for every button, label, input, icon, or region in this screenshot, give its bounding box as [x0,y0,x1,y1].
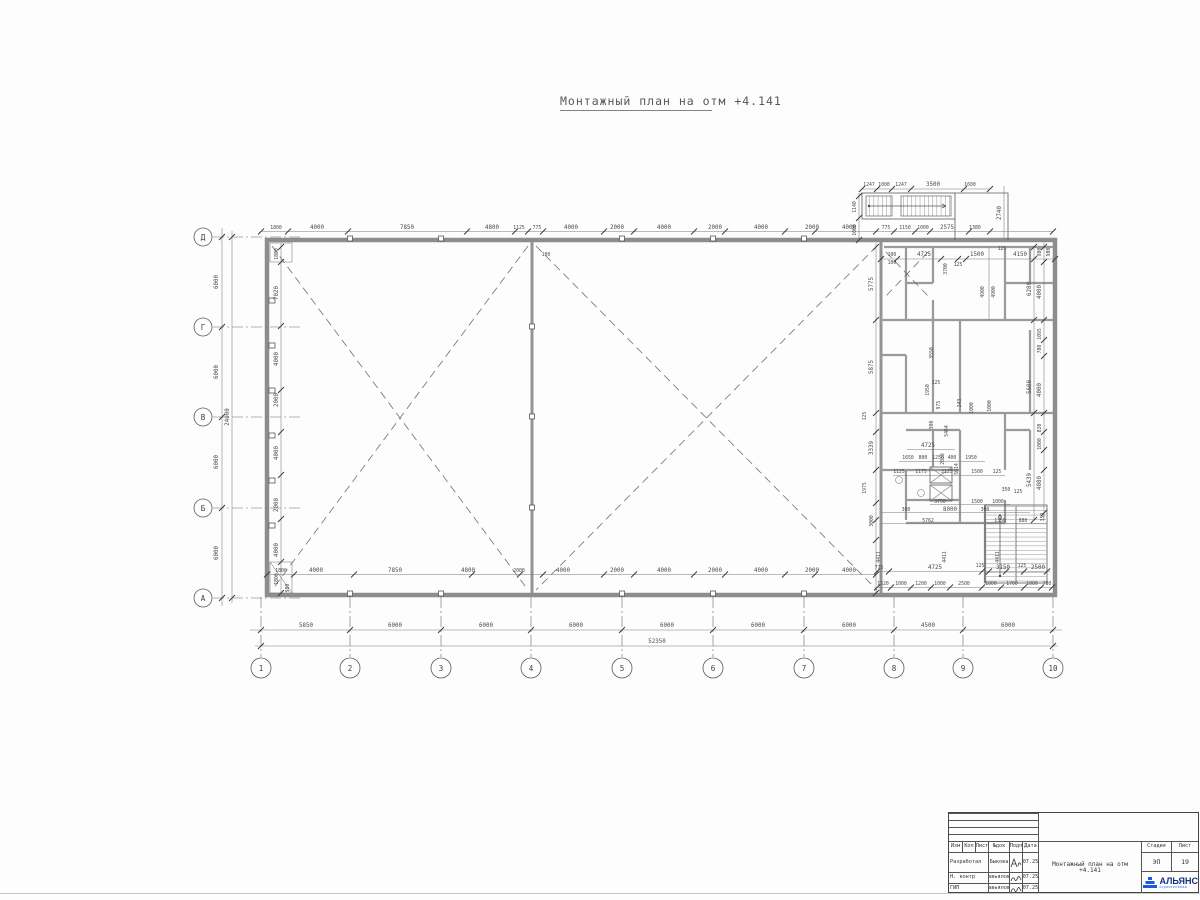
axis-label: 7 [802,664,807,673]
dim-label: 2500 [958,581,970,587]
tb-signature-2 [1009,872,1022,883]
dim-label: 4900 [980,286,986,298]
dim-label: 3000 [869,515,875,527]
column [802,236,807,241]
company-logo-icon [1144,877,1156,890]
dim-label: 6000 [214,275,220,289]
dim-label: 1250 [932,455,944,461]
dim-label: 2000 [708,225,722,231]
tb-col-list: Лист [975,841,988,852]
dim-label: 125 [976,563,985,569]
axis-label: 2 [348,664,353,673]
dim-label: 4800 [461,568,475,574]
dim-label: 800 [919,455,928,461]
dim-label: 1247 [895,182,907,188]
column [439,236,444,241]
dim-label: 2740 [997,206,1003,220]
dim-label: 300 [902,507,911,513]
signature-glyph [1010,874,1022,883]
outer-wall [267,240,1055,595]
dim-label: 4900 [991,286,997,298]
fixture-symbol-2 [918,490,925,497]
dim-label: 300 [929,421,935,430]
dim-label: 6000 [751,623,765,629]
dim-label: 6000 [214,365,220,379]
axis-label: 3 [439,664,444,673]
dim-label: 5762 [922,518,934,524]
dim-label: 2500 [1031,565,1045,571]
dim-label: 125 [862,412,868,421]
dim-label: 2000 [610,568,624,574]
dim-label: 4080 [1037,476,1043,490]
dim-label: 3750 [934,499,946,505]
column [711,236,716,241]
axis-label: Б [201,504,206,513]
dim-label: 6000 [479,623,493,629]
column [711,591,716,596]
dim-label: 1975 [862,482,868,494]
dim-label: 3500 [926,182,940,188]
dim-label: 6280 [1027,282,1033,296]
column [802,591,807,596]
dim-label: 359 [1040,513,1046,522]
dim-label: 5875 [869,360,875,374]
dim-label: 1000 [1026,581,1038,587]
dim-label: 3339 [869,441,875,455]
column [348,591,353,596]
dim-label: 4000 [274,446,280,460]
dim-label: 6000 [388,623,402,629]
dim-label: 1000 [987,400,993,412]
dim-label: 125 [993,469,1002,475]
tb-name-2: Завьялова [988,872,1009,883]
dim-label: 4150 [1013,252,1027,258]
dim-label: 1000 [985,581,997,587]
axis-label: В [201,413,206,422]
dim-label: 125 [932,380,941,386]
dim-label: 6000 [1001,623,1015,629]
dim-label: 4000 [564,225,578,231]
dim-label: 4725 [917,252,931,258]
dim-label: 1000 [852,224,858,236]
dim-label: 1140 [852,201,858,213]
axis-label: Г [201,323,206,332]
column [348,236,353,241]
dim-label: 2000 [610,225,624,231]
dim-label: 4000 [556,568,570,574]
column [530,505,535,510]
dim-label: 6000 [214,546,220,560]
dim-label: 4725 [928,565,942,571]
dim-label: 243 [957,399,963,408]
bracing [272,246,928,590]
dim-label: 125 [1014,489,1023,495]
dim-label: 100 [888,252,897,258]
dim-label: 1000 [895,581,907,587]
walls [267,240,1055,595]
dim-label: 1125 [893,469,905,475]
dim-label: 1320 [877,581,889,587]
dim-label: 4000 [657,225,671,231]
dim-label: 1200 [915,581,927,587]
dim-label: 7020 [274,286,280,300]
column [620,236,625,241]
dim-label: 4000 [1037,285,1043,299]
title-block: Изм Кол Лист №док Подп Дата Разработал Б… [948,812,1199,893]
axis-label: 4 [529,664,534,673]
dim-label: 775 [875,565,884,571]
dim-label: 4411 [876,551,882,563]
dim-label: 1095 [1037,328,1043,340]
dim-label: 300 [981,507,990,513]
signature-glyph [1010,857,1022,869]
dim-label: 980 [285,584,291,593]
dim-label: 4000 [274,543,280,557]
dim-label: 1000 [917,225,929,231]
dim-label: 5850 [299,623,313,629]
dim-label: 4000 [274,352,280,366]
dim-label: 1800 [274,573,280,585]
dimension-lines [222,186,1062,646]
dim-label: 52350 [648,639,666,645]
dim-label: 980 [1037,248,1043,257]
tb-stage-value: ЭП [1141,852,1171,871]
dim-label: 3700 [943,263,949,275]
dim-label: 1700 [1006,581,1018,587]
dim-label: 780 [1037,345,1043,354]
tb-signature-1 [1009,852,1022,872]
dim-label: 5464 [944,425,950,437]
column [530,414,535,419]
pilaster [269,388,275,393]
dim-label: 3150 [996,565,1010,571]
dim-label: 1500 [971,499,983,505]
column [530,324,535,329]
floor-plan-canvas: Монтажный план на отм +4.141 [0,0,1200,900]
dim-label: 1800 [274,248,280,260]
dim-label: 2000 [708,568,722,574]
tb-col-podp: Подп [1009,841,1022,852]
axis-label: 10 [1048,664,1058,673]
dim-label: 125 [1018,563,1027,569]
dim-label: 4000 [310,225,324,231]
dim-label: 350 [1002,487,1011,493]
dim-label: 1350 [994,518,1006,524]
dim-label: 775 [533,225,542,231]
dim-label: 100 [888,260,897,266]
tb-sheet-label: Лист [1171,841,1198,852]
dim-label: 980 [1046,248,1052,257]
pilaster [269,343,275,348]
dim-label: 4411 [942,551,948,563]
tb-col-kol: Кол [962,841,975,852]
axis-label: Д [201,233,206,242]
dim-label: 4000 [1037,383,1043,397]
tb-col-izm: Изм [949,841,962,852]
dim-label: 4800 [485,225,499,231]
dim-label: 975 [936,401,942,410]
dim-label: 1500 [971,469,983,475]
dim-label: 400 [948,455,957,461]
dim-label: 4411 [995,551,1001,563]
dim-label: 1500 [970,252,984,258]
tb-stage-label: Стадия [1141,841,1171,852]
dim-label: 1000 [969,402,975,414]
pilaster [269,433,275,438]
dim-label: 2000 [805,568,819,574]
tb-date-1: 07.25 [1022,852,1038,872]
page-title: Монтажный план на отм +4.141 [560,94,782,108]
dim-label: 125 [954,262,963,268]
dim-label: 4000 [754,225,768,231]
fixture-symbol-1 [896,477,903,484]
dim-label: 7850 [400,225,414,231]
dim-label: 2575 [940,225,954,231]
dim-label: 4725 [921,443,935,449]
dim-label: 5600 [1027,380,1033,394]
axis-label: 1 [259,664,264,673]
axis-label: 9 [961,664,966,673]
dim-label: 880 [1019,518,1028,524]
dim-label: 2000 [805,225,819,231]
dim-label: 1650 [902,455,914,461]
dim-label: 24000 [225,408,231,426]
dim-label: 5775 [869,277,875,291]
dim-label: 1380 [969,225,981,231]
dim-label: 4000 [754,568,768,574]
tb-role-1: Разработал [949,852,988,872]
axis-label: 6 [711,664,716,673]
column [620,591,625,596]
dim-label: 4000 [842,568,856,574]
drawing-sheet: Монтажный план на отм +4.141 [0,0,1200,900]
dim-label: 1950 [965,455,977,461]
dim-label: 820 [1037,424,1043,433]
dim-label: 6000 [569,623,583,629]
tb-sheet-value: 19 [1171,852,1198,871]
dim-label: 1247 [863,182,875,188]
dim-label: 775 [882,225,891,231]
dim-label: 1175 [915,469,927,475]
dim-label: 780 [1043,581,1052,587]
dim-label: 5439 [1027,473,1033,487]
tb-logo-cell: АЛЬЯНС строительная [1141,871,1198,894]
dim-label: 1950 [925,384,931,396]
dim-label: 1600 [964,182,976,188]
axis-label: А [201,594,206,603]
sheet-title: Монтажный план на отм +4.141 [560,94,782,111]
tb-name-1: Быкова [988,852,1009,872]
axis-label: 8 [892,664,897,673]
dim-label: 4000 [309,568,323,574]
dim-label: 1080 [1037,438,1043,450]
dim-label: 7850 [388,568,402,574]
dim-label: 3550 [929,347,935,359]
tb-col-dok: №док [988,841,1009,852]
axis-label: 5 [620,664,625,673]
dim-label: 6000 [660,623,674,629]
tb-role-2: Н. контр [949,872,988,883]
dim-label: 2000 [513,568,525,574]
dim-label: 1000 [992,499,1004,505]
tb-date-2: 07.25 [1022,872,1038,883]
dim-label: 4000 [657,568,671,574]
dim-label: 2000 [274,498,280,512]
dim-label: 6000 [214,455,220,469]
dim-label: 125 [998,246,1007,252]
tb-doc-title: Монтажный план на отм +4.141 [1038,841,1141,894]
pilaster [269,523,275,528]
columns [269,236,807,596]
dim-label: 4500 [921,623,935,629]
column [439,591,444,596]
dim-label: 1000 [934,581,946,587]
company-logo-subtext: строительная [1159,886,1187,890]
dim-label: 5614 [954,463,960,475]
sheet-border-line [0,893,1200,894]
dim-label: 1150 [899,225,911,231]
dim-label: 6000 [842,623,856,629]
tb-col-data: Дата [1022,841,1038,852]
lift-shaft-2-x [930,485,952,501]
dim-label: 8000 [943,507,957,513]
dim-label: 2125 [941,469,953,475]
dim-label: 2000 [274,393,280,407]
dim-label: 1000 [878,182,890,188]
dim-label: 1800 [270,225,282,231]
dim-label: 1125 [513,225,525,231]
dim-label: 1800 [275,568,287,574]
dim-label: 100 [542,252,551,258]
pilaster [269,478,275,483]
